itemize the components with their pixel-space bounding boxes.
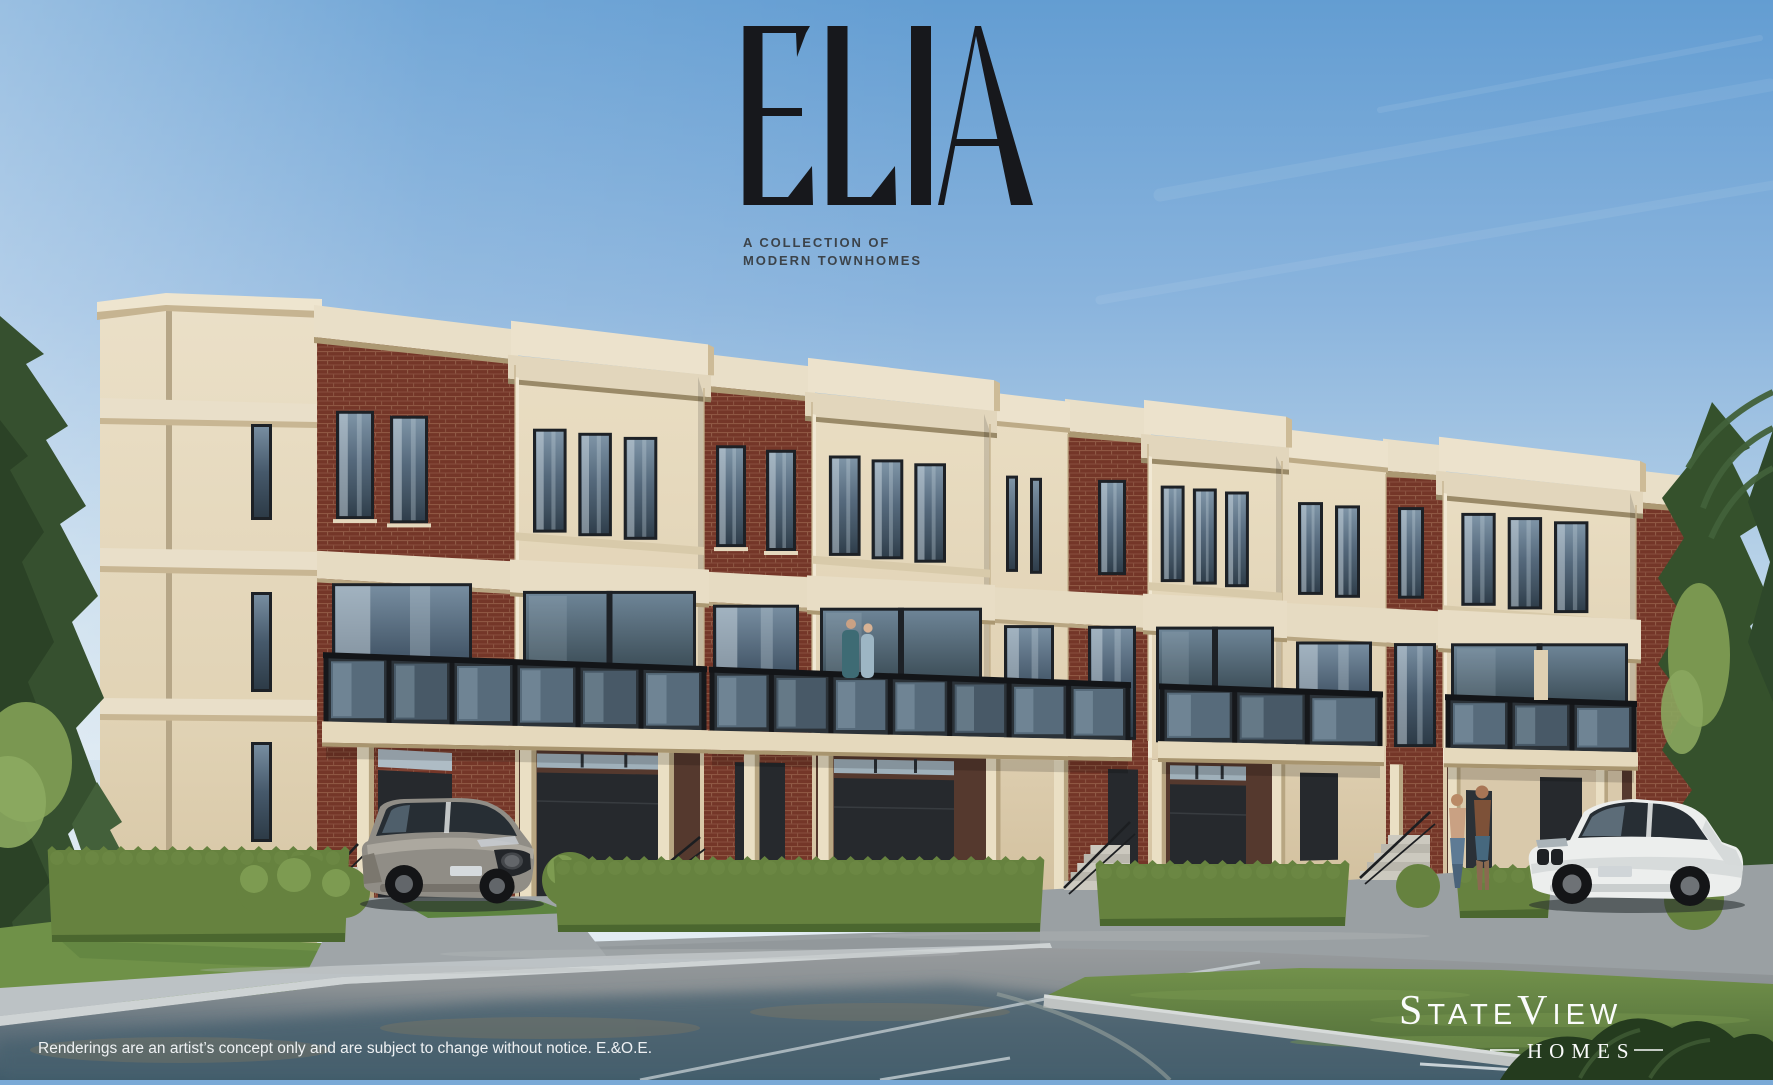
svg-text:HOMES: HOMES [1527,1039,1636,1063]
svg-text:Renderings are an artist’s con: Renderings are an artist’s concept only … [38,1040,652,1057]
svg-text:MODERN TOWNHOMES: MODERN TOWNHOMES [743,253,922,268]
svg-text:A COLLECTION OF: A COLLECTION OF [743,235,890,250]
